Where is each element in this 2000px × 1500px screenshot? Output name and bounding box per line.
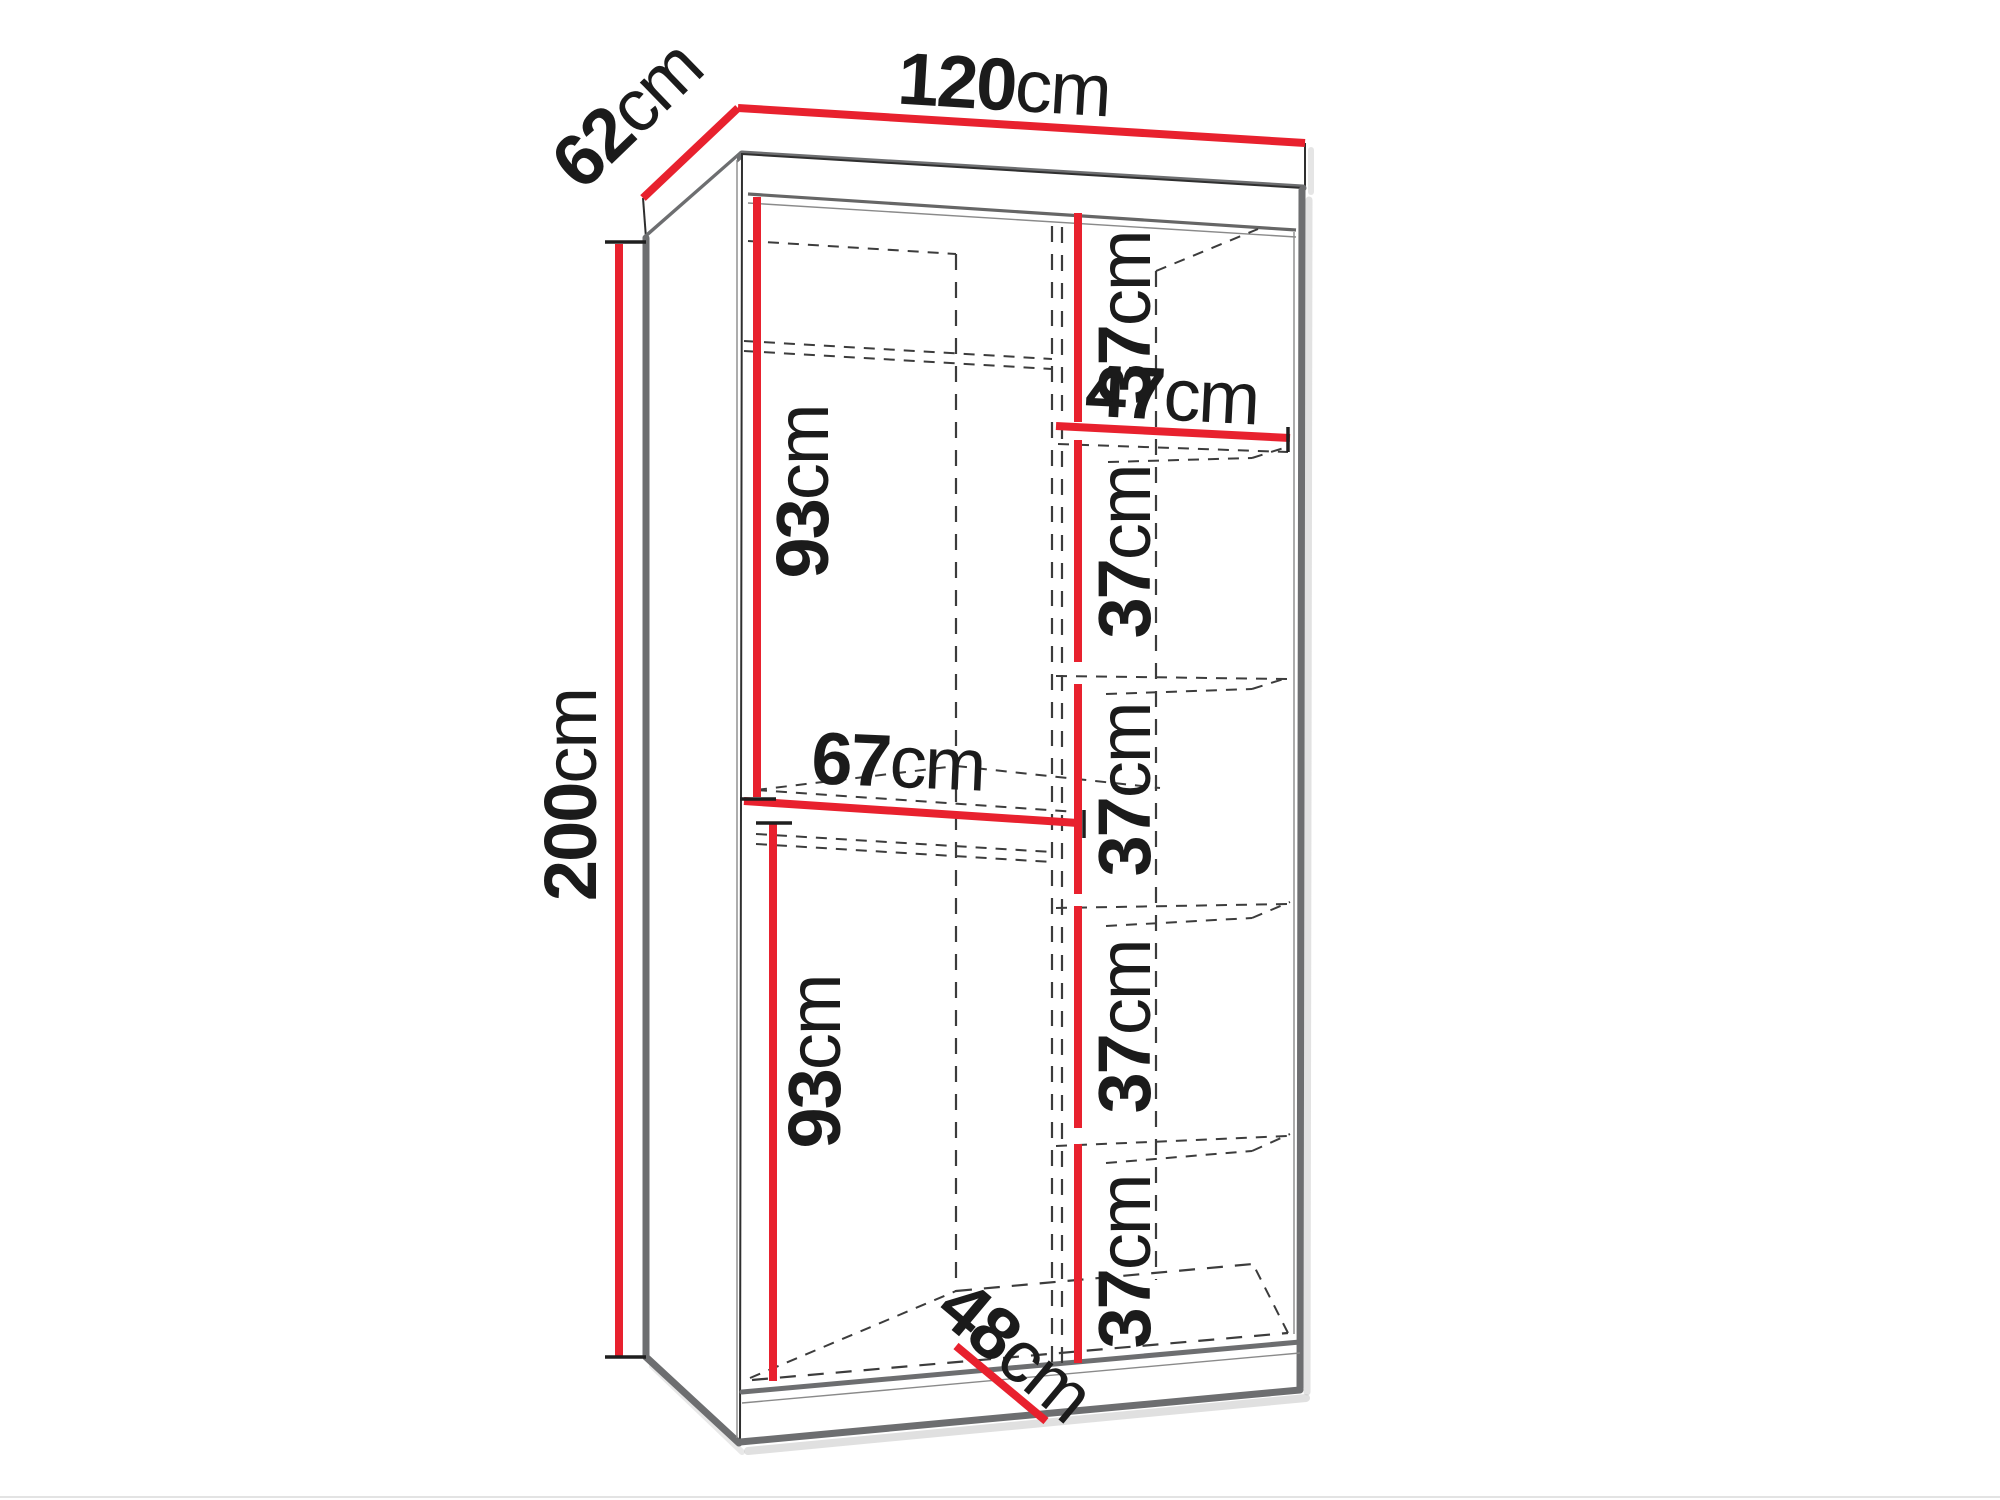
shelf-spacing-label-3: 37cm <box>1083 704 1166 877</box>
lower-hanging-height-label: 93cm <box>773 976 856 1149</box>
page-bottom-border <box>0 1496 2000 1498</box>
wardrobe-dimension-diagram: 120cm 62cm 200cm 93cm 67cm 93cm 48cm 47c… <box>0 0 2000 1500</box>
height-label: 200cm <box>529 689 612 901</box>
shelf-spacing-label-4: 37cm <box>1083 941 1166 1114</box>
shelf-spacing-label-1: 37cm <box>1083 232 1166 405</box>
diagram-canvas: 120cm 62cm 200cm 93cm 67cm 93cm 48cm 47c… <box>0 0 2000 1500</box>
shelf-spacing-label-5: 37cm <box>1083 1176 1166 1349</box>
left-compartment-width-label: 67cm <box>810 716 986 806</box>
width-label: 120cm <box>896 36 1113 132</box>
left-side-panel <box>646 158 737 1440</box>
shelf-spacing-label-2: 37cm <box>1083 466 1166 639</box>
upper-hanging-height-label: 93cm <box>761 406 844 579</box>
